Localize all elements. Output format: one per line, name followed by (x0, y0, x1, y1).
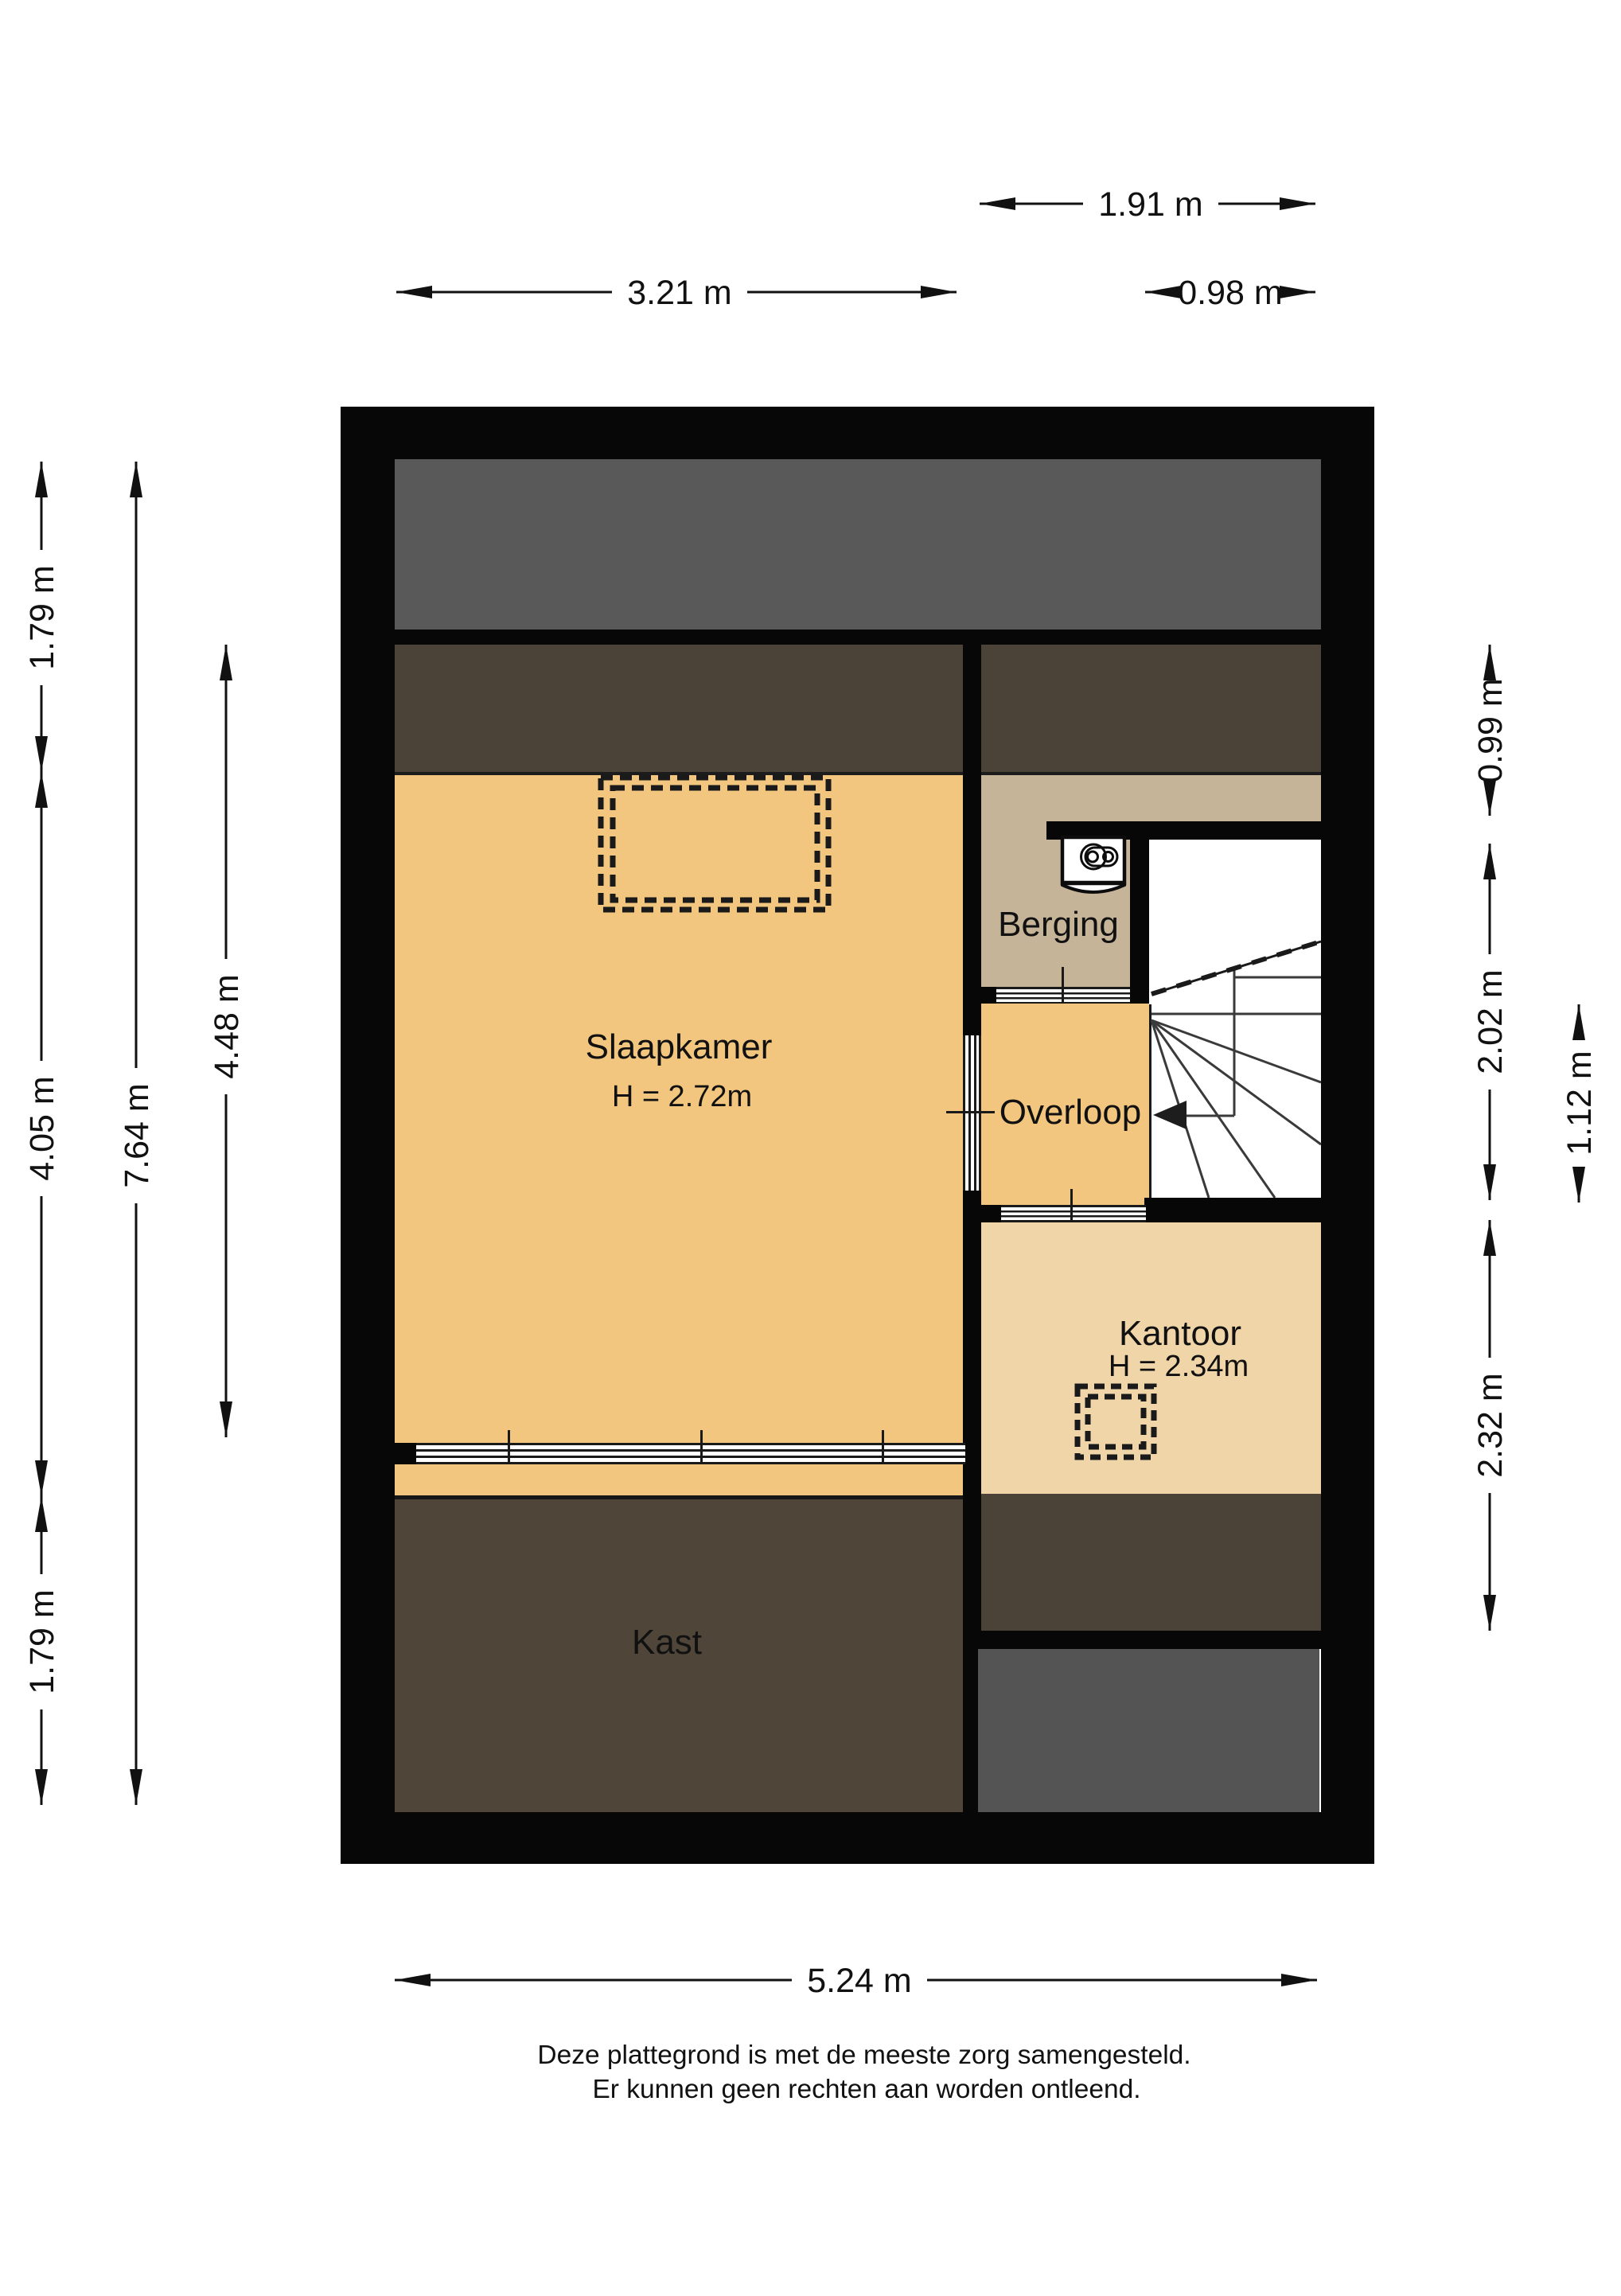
svg-text:2.32 m: 2.32 m (1471, 1373, 1510, 1477)
svg-text:3.21 m: 3.21 m (627, 274, 731, 312)
svg-text:1.79 m: 1.79 m (23, 1589, 61, 1694)
svg-text:Kantoor: Kantoor (1119, 1314, 1241, 1353)
svg-text:Overloop: Overloop (999, 1093, 1142, 1132)
svg-text:0.99 m: 0.99 m (1471, 678, 1510, 782)
svg-text:H = 2.34m: H = 2.34m (1109, 1350, 1249, 1383)
svg-text:H = 2.72m: H = 2.72m (612, 1080, 752, 1113)
svg-text:0.98 m: 0.98 m (1178, 274, 1282, 312)
svg-text:Er kunnen geen rechten aan wor: Er kunnen geen rechten aan worden ontlee… (592, 2075, 1140, 2104)
svg-text:Kast: Kast (632, 1623, 702, 1662)
svg-text:5.24 m: 5.24 m (807, 1962, 911, 2000)
svg-text:7.64 m: 7.64 m (118, 1083, 156, 1187)
svg-text:Berging: Berging (998, 905, 1119, 944)
svg-text:Slaapkamer: Slaapkamer (586, 1027, 773, 1066)
svg-text:Deze plattegrond is met de mee: Deze plattegrond is met de meeste zorg s… (537, 2041, 1190, 2070)
svg-text:1.79 m: 1.79 m (23, 565, 61, 669)
svg-text:4.05 m: 4.05 m (23, 1076, 61, 1180)
svg-text:1.12 m: 1.12 m (1561, 1051, 1599, 1155)
svg-text:2.02 m: 2.02 m (1471, 969, 1510, 1074)
svg-text:1.91 m: 1.91 m (1098, 185, 1202, 224)
svg-text:4.48 m: 4.48 m (208, 974, 246, 1078)
